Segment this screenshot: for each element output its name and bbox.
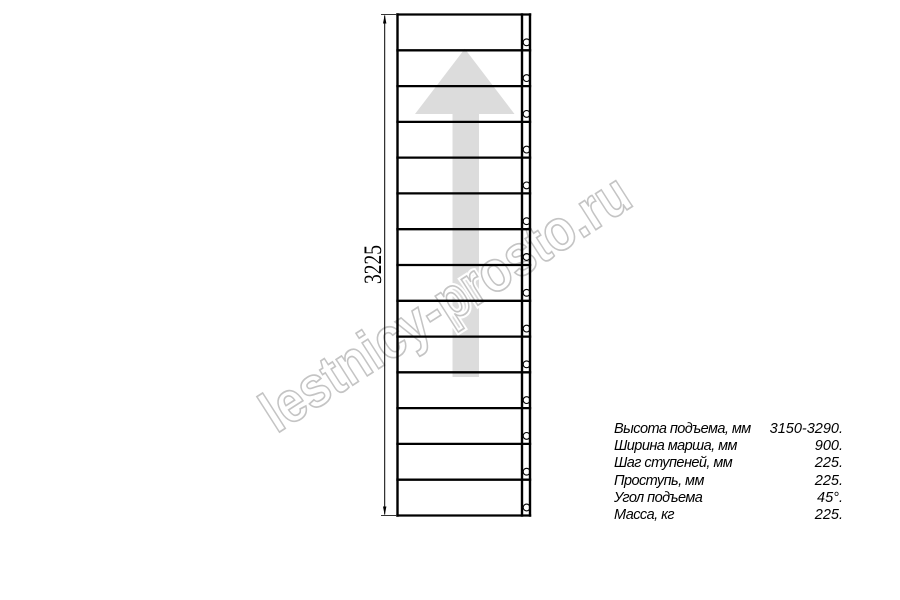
svg-text:lestnicy-prosto.ru: lestnicy-prosto.ru [248, 161, 642, 445]
svg-text:3225: 3225 [360, 245, 387, 284]
